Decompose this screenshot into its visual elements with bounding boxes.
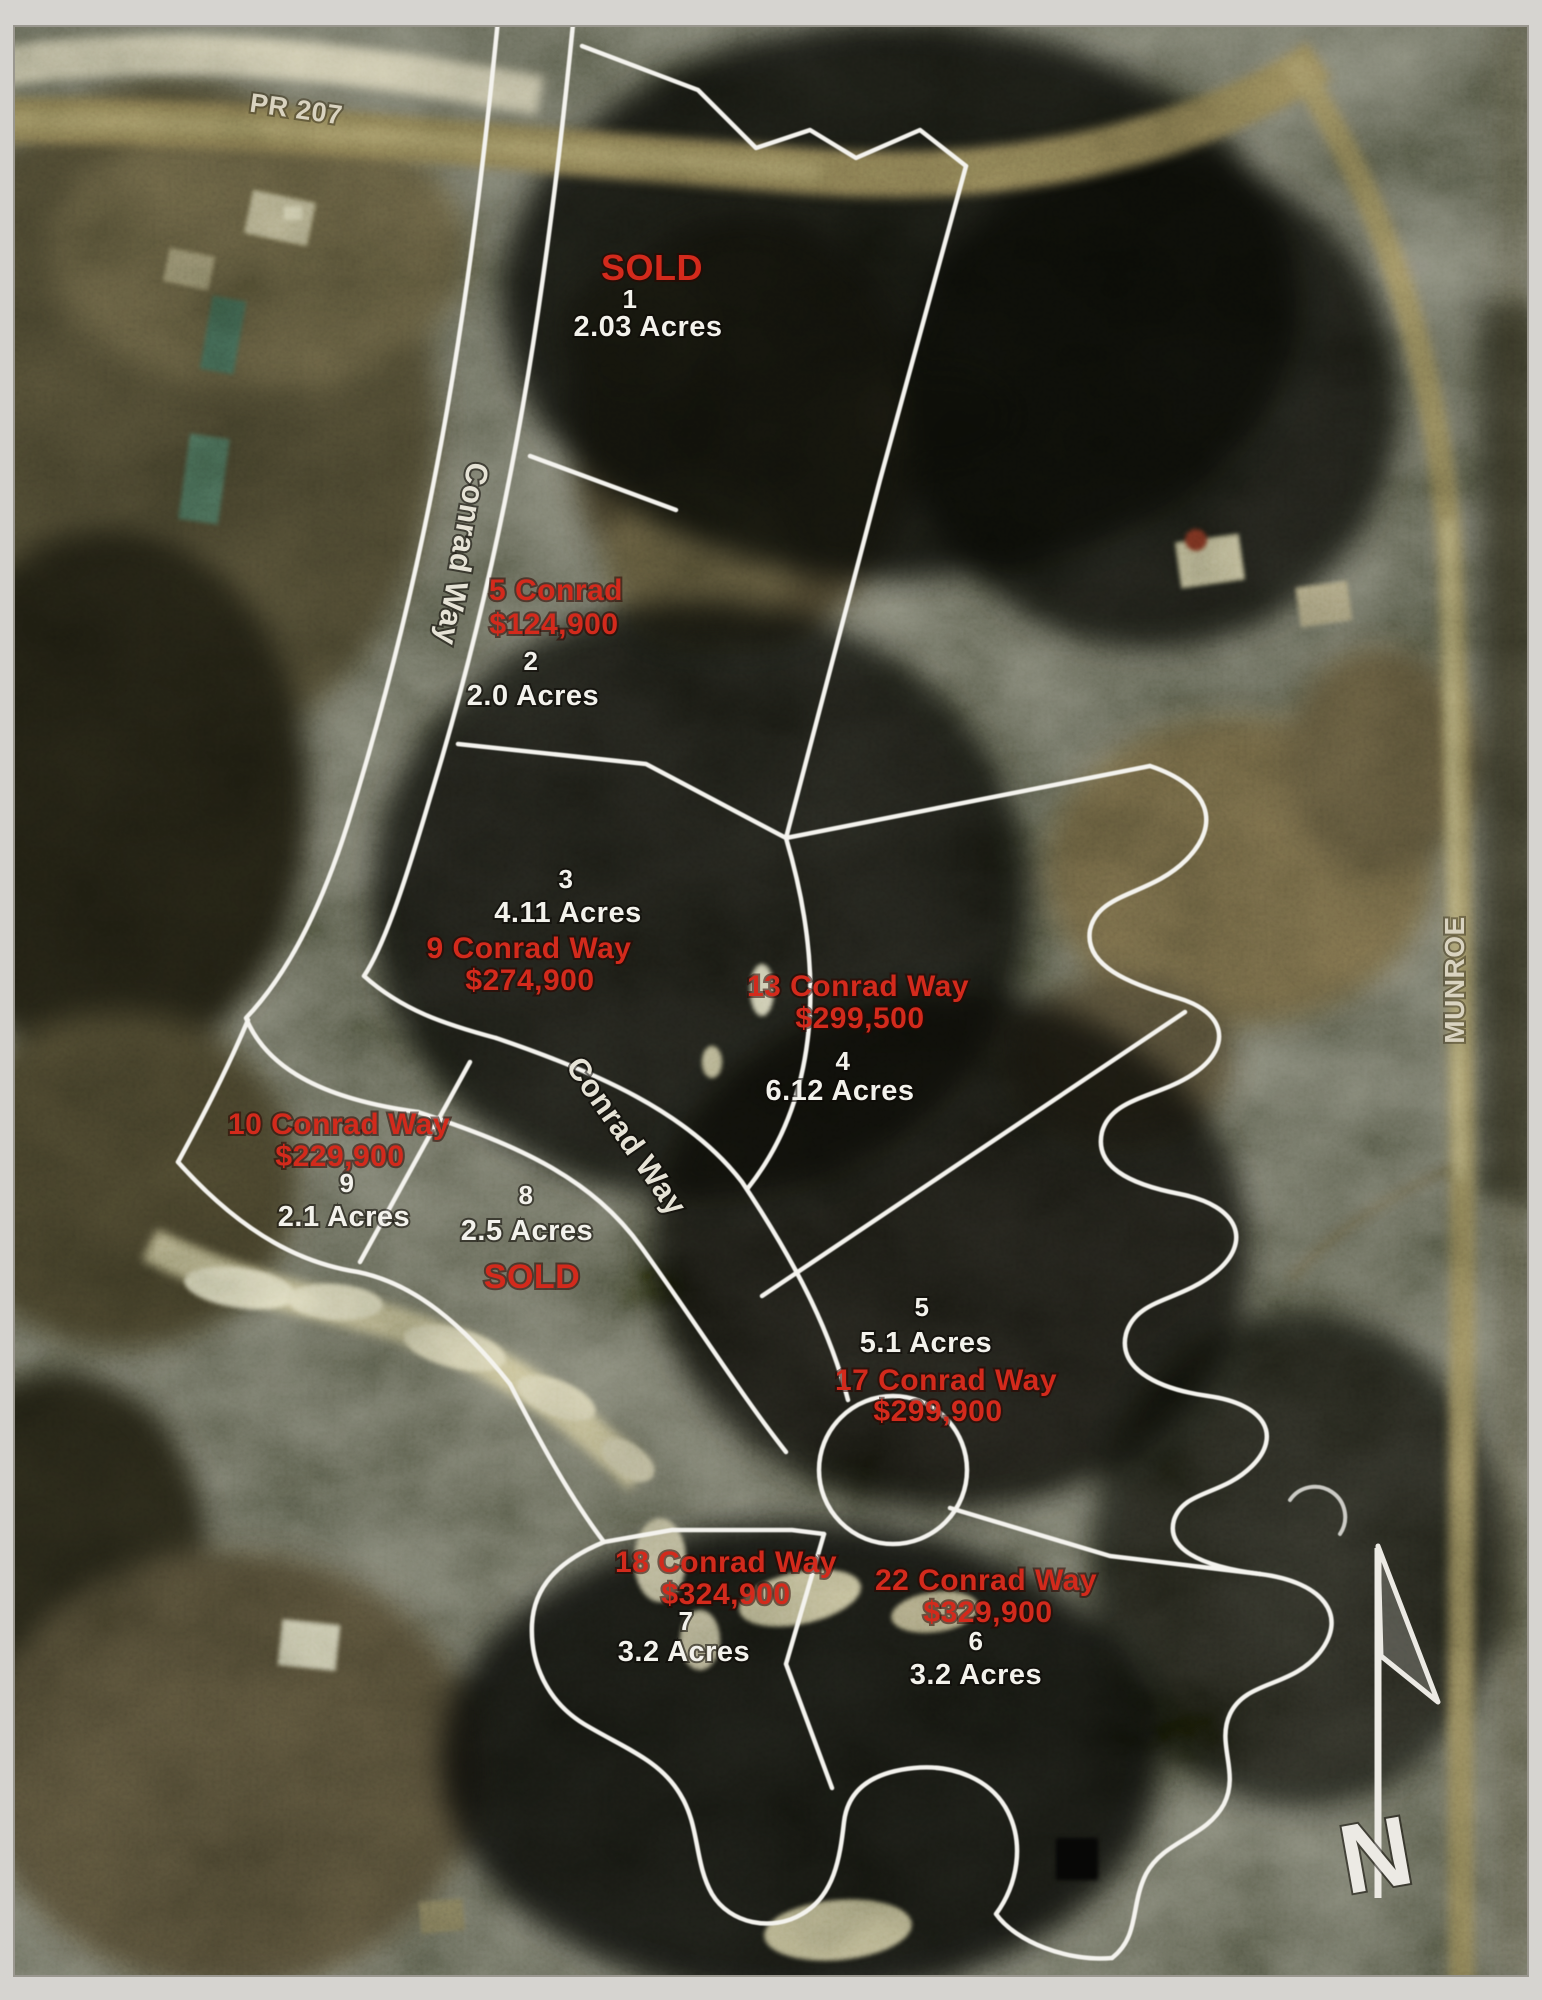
lot-7-number-label: 7 <box>679 1606 694 1636</box>
lot-8-acres-label: 2.5 Acres <box>461 1215 593 1247</box>
lot-4-address-label: 13 Conrad Way <box>747 970 969 1003</box>
lot-3-acres-label: 4.11 Acres <box>494 897 641 929</box>
lot-7-acres-label: 3.2 Acres <box>618 1636 750 1668</box>
lot-5-price-label: $299,900 <box>873 1395 1002 1428</box>
lot-6-address-label: 22 Conrad Way <box>875 1564 1097 1597</box>
lot-2-address-label: 5 Conrad <box>489 574 623 607</box>
satellite-terrain: Conrad Way Conrad Way PR 207 MUNROE SOLD… <box>0 14 1542 2000</box>
lot-9-address-label: 10 Conrad Way <box>228 1108 450 1141</box>
lot-6-acres-label: 3.2 Acres <box>910 1659 1042 1691</box>
lot-5-acres-label: 5.1 Acres <box>860 1327 992 1359</box>
lot-6-number-label: 6 <box>969 1626 984 1656</box>
lot-1-number-label: 1 <box>623 284 638 314</box>
lot-6-price-label: $329,900 <box>923 1596 1052 1629</box>
lot-3-number-label: 3 <box>559 864 574 894</box>
munroe-road-label: MUNROE <box>1439 916 1470 1043</box>
lot-2-acres-label: 2.0 Acres <box>467 680 599 712</box>
lot-3-price-label: $274,900 <box>465 964 594 997</box>
lot-5-address-label: 17 Conrad Way <box>835 1364 1057 1397</box>
plat-map-page: Conrad Way Conrad Way PR 207 MUNROE SOLD… <box>0 0 1542 2000</box>
lot-1-status-label: SOLD <box>601 247 703 288</box>
lot-9-acres-label: 2.1 Acres <box>278 1201 410 1233</box>
lot-3-address-label: 9 Conrad Way <box>427 932 632 965</box>
lot-4-price-label: $299,500 <box>795 1002 924 1035</box>
lot-9-number-label: 9 <box>340 1168 355 1198</box>
lot-7-address-label: 18 Conrad Way <box>615 1546 837 1579</box>
lot-4-number-label: 4 <box>836 1046 851 1076</box>
satellite-plat-map: Conrad Way Conrad Way PR 207 MUNROE SOLD… <box>0 0 1542 2000</box>
lot-2-price-label: $124,900 <box>489 608 618 641</box>
lot-4-acres-label: 6.12 Acres <box>765 1075 914 1107</box>
lot-8-number-label: 8 <box>519 1180 534 1210</box>
lot-5-number-label: 5 <box>915 1292 930 1322</box>
lot-2-number-label: 2 <box>524 646 539 676</box>
lot-1-acres-label: 2.03 Acres <box>573 311 722 343</box>
lot-8-status-label: SOLD <box>484 1258 580 1296</box>
